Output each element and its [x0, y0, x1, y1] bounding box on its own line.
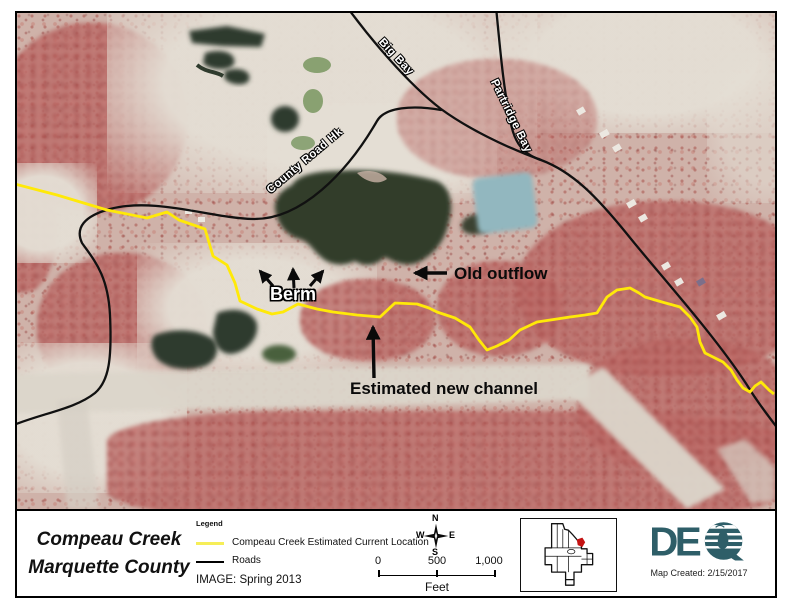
scale-tick-500: 500	[428, 555, 446, 567]
county-outline-map	[521, 519, 613, 588]
scale-unit-label: Feet	[425, 580, 449, 594]
info-bar: Compeau Creek Marquette County Legend Co…	[17, 509, 775, 596]
scale-bar-tick	[378, 570, 380, 577]
compass-star-icon	[423, 523, 449, 549]
legend-label-roads: Roads	[232, 555, 261, 566]
compass-n: N	[432, 513, 439, 523]
image-date-note: IMAGE: Spring 2013	[196, 574, 301, 586]
map-frame: Big Bay Partridge Bay County Road Hk Ber…	[15, 11, 777, 598]
legend: Legend Compeau Creek Estimated Current L…	[196, 519, 301, 586]
scale-bar-tick	[494, 570, 496, 577]
legend-item-roads: Roads	[196, 554, 301, 568]
map-created-caption: Map Created: 2/15/2017	[649, 568, 749, 578]
scale-bar-tick	[436, 570, 438, 577]
scale-tick-0: 0	[375, 555, 381, 567]
creek-line-swatch	[196, 542, 224, 545]
title-line-2: Marquette County	[19, 554, 199, 582]
location-marker	[577, 538, 585, 547]
map-title: Compeau Creek Marquette County	[19, 526, 199, 581]
annotation-estimated-new-channel: Estimated new channel	[350, 379, 538, 399]
legend-header: Legend	[196, 519, 301, 528]
legend-item-creek: Compeau Creek Estimated Current Location	[196, 536, 301, 550]
annotation-berm: Berm	[270, 284, 316, 305]
deq-logo-block: DE Map Created: 2/15/2017	[649, 521, 749, 578]
scale-tick-1000: 1,000	[475, 555, 503, 567]
aerial-map: Big Bay Partridge Bay County Road Hk Ber…	[17, 13, 775, 509]
legend-label-creek: Compeau Creek Estimated Current Location	[232, 537, 429, 548]
buildings	[185, 106, 727, 320]
deq-letters: DE	[652, 521, 701, 561]
deq-logo: DE	[652, 521, 746, 561]
map-document-page: Big Bay Partridge Bay County Road Hk Ber…	[0, 0, 792, 612]
title-line-1: Compeau Creek	[19, 526, 199, 554]
scale-bar: 0 500 1,000 Feet	[361, 555, 521, 595]
annotation-old-outflow: Old outflow	[454, 264, 547, 284]
ponds	[151, 26, 538, 369]
map-vector-overlay	[17, 13, 775, 509]
road-line-swatch	[196, 561, 224, 563]
locator-inset-map	[520, 518, 617, 592]
compass-e: E	[449, 530, 455, 540]
